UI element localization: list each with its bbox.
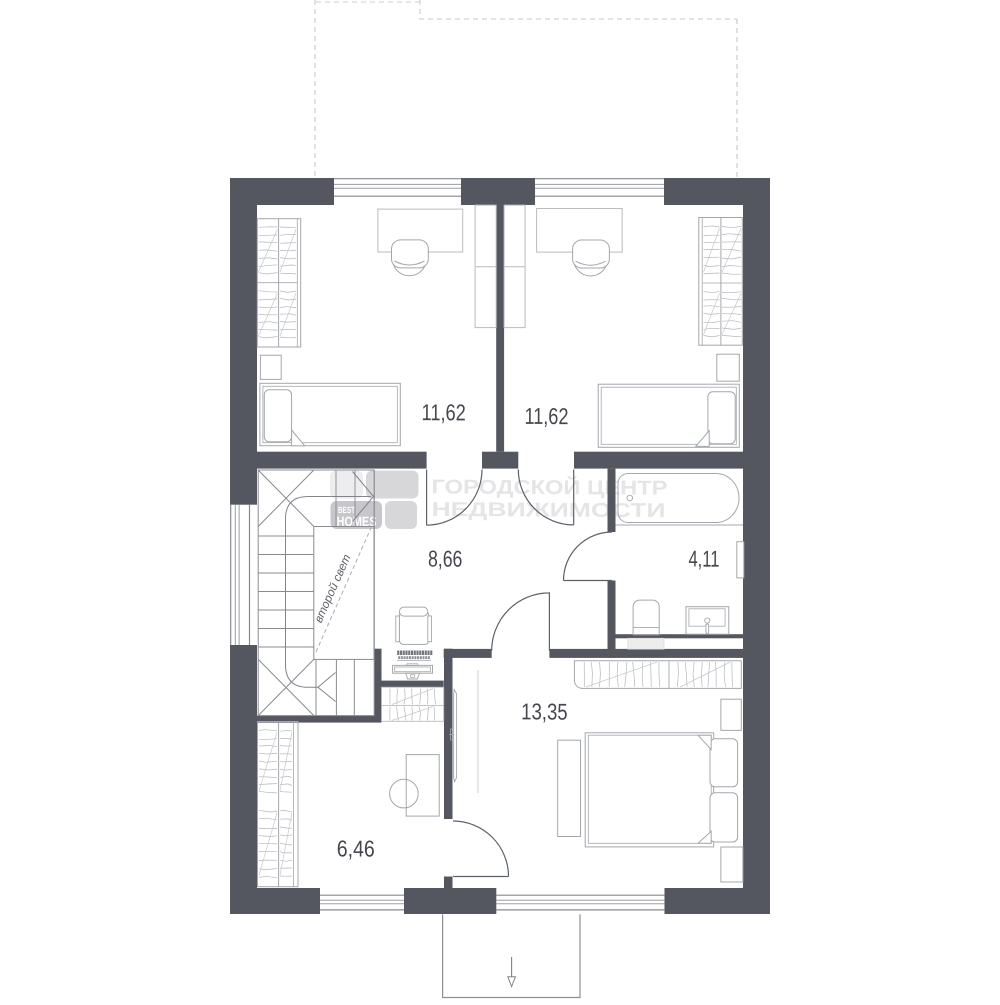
svg-text:4,11: 4,11 xyxy=(688,546,719,572)
svg-text:11,62: 11,62 xyxy=(524,403,568,429)
svg-text:11,62: 11,62 xyxy=(422,399,466,425)
svg-text:6,46: 6,46 xyxy=(337,835,375,861)
svg-text:8,66: 8,66 xyxy=(428,546,463,572)
svg-text:13,35: 13,35 xyxy=(521,698,568,724)
